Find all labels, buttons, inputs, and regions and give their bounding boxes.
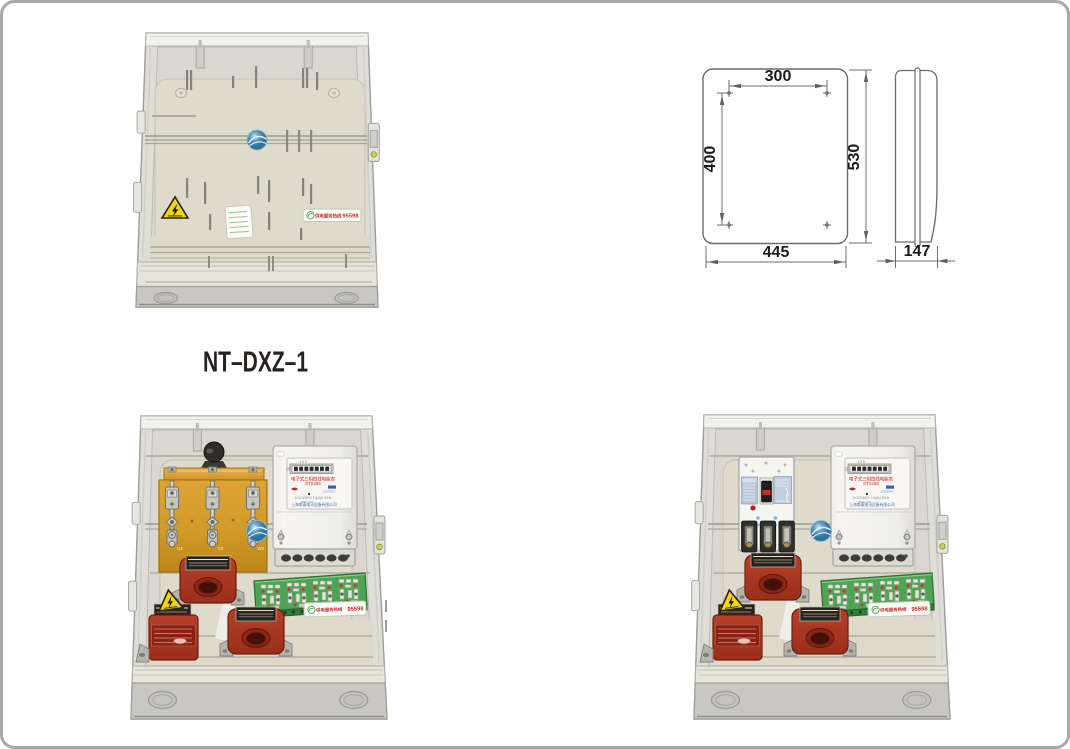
svg-text:上海南泰电讯设备有限公司: 上海南泰电讯设备有限公司 — [291, 502, 337, 507]
svg-text:W2: W2 — [258, 546, 265, 551]
svg-text:NT–DXZ–1: NT–DXZ–1 — [203, 347, 308, 379]
svg-text:3×220/380V 1.5(6)A 50Hz: 3×220/380V 1.5(6)A 50Hz — [295, 496, 332, 500]
svg-text:400: 400 — [702, 146, 719, 173]
svg-text:1 2 3: 1 2 3 — [857, 460, 864, 464]
svg-text:上海南泰电讯设备有限公司: 上海南泰电讯设备有限公司 — [849, 502, 895, 507]
svg-text:95598: 95598 — [347, 606, 364, 613]
svg-text:V2: V2 — [218, 546, 224, 551]
svg-text:300: 300 — [765, 68, 792, 85]
svg-text:3×220/380V 1.5(6)A 50Hz: 3×220/380V 1.5(6)A 50Hz — [853, 496, 890, 500]
svg-text:DTS156: DTS156 — [305, 481, 321, 486]
svg-text:95598: 95598 — [911, 606, 928, 613]
svg-text:220/380V: 220/380V — [881, 490, 894, 494]
svg-text:95598: 95598 — [342, 214, 359, 220]
svg-text:DTS156: DTS156 — [863, 481, 879, 486]
svg-text:供电服务热线: 供电服务热线 — [314, 212, 342, 219]
svg-text:530: 530 — [846, 144, 863, 171]
svg-text:1 2 3: 1 2 3 — [299, 460, 306, 464]
svg-text:445: 445 — [763, 244, 790, 261]
svg-text:147: 147 — [904, 243, 931, 260]
svg-text:U2: U2 — [177, 546, 183, 551]
svg-text:220/380V: 220/380V — [323, 490, 336, 494]
